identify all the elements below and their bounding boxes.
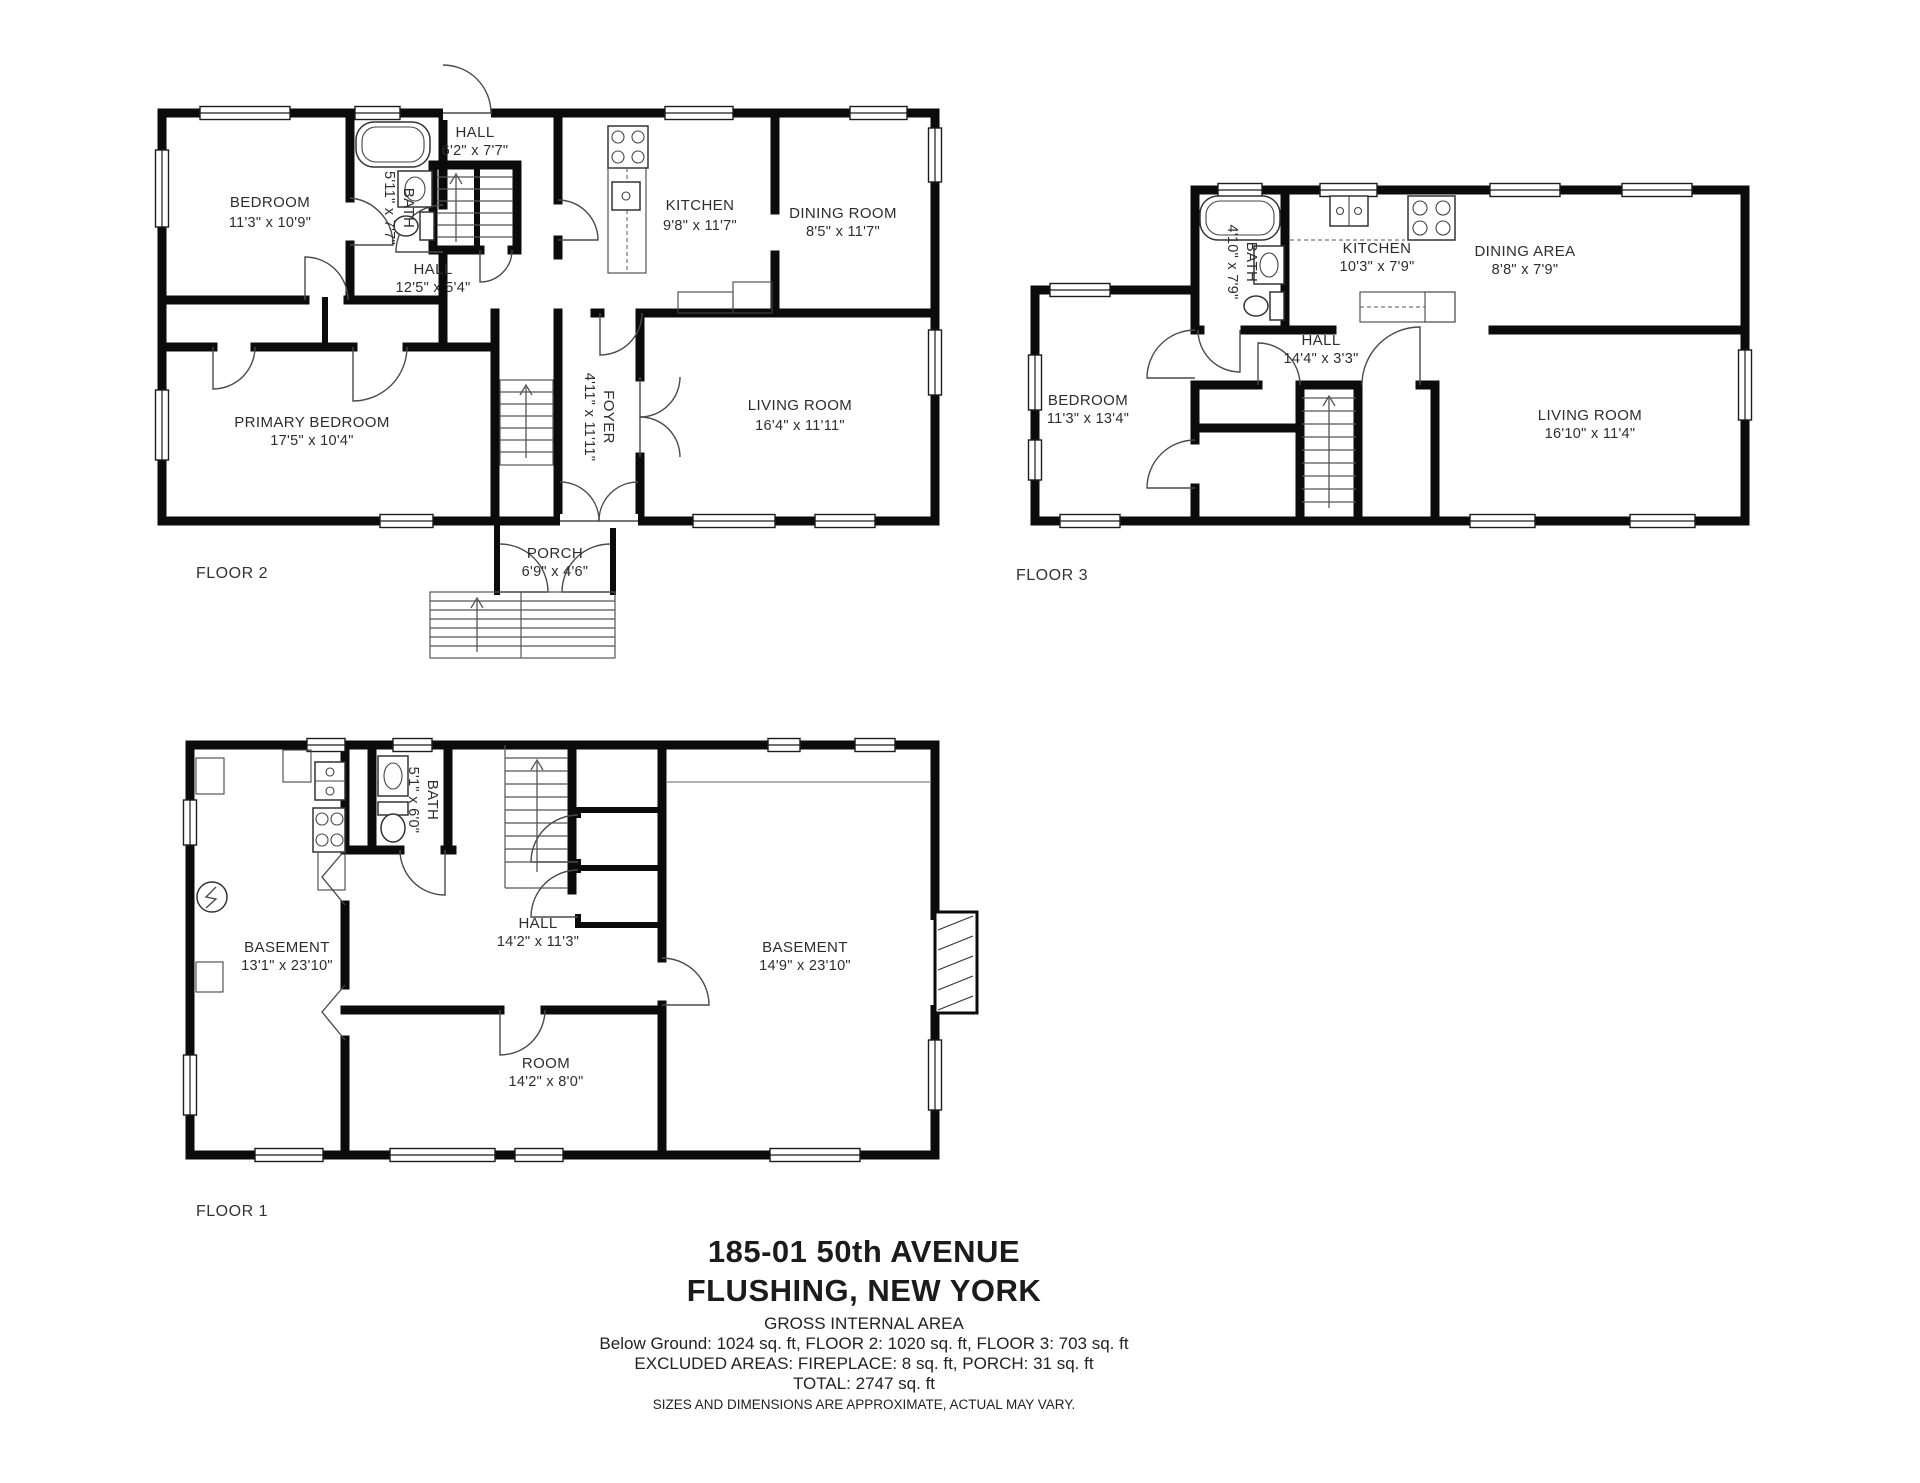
room-label-f3-kitchen: KITCHEN: [1343, 240, 1412, 257]
address-line-2: FLUSHING, NEW YORK: [687, 1273, 1042, 1308]
room-label-f2-foyer: FOYER: [600, 390, 617, 444]
room-label-f1-basement-right: BASEMENT: [762, 939, 848, 956]
room-dims-f1-hall: 14'2" x 11'3": [497, 934, 579, 950]
room-label-f1-basement-left: BASEMENT: [244, 939, 330, 956]
porch-steps-symbol: [430, 592, 615, 658]
total-area: TOTAL: 2747 sq. ft: [793, 1374, 935, 1393]
cabinet-symbol: [196, 962, 223, 992]
sink-symbol: [378, 756, 408, 796]
stairs-symbol: [500, 380, 553, 465]
room-dims-f3-bedroom: 11'3" x 13'4": [1047, 411, 1129, 427]
floor-3-windows: [1029, 184, 1752, 528]
room-dims-f1-bath: 5'1" x 6'0": [405, 767, 421, 834]
room-dims-f2-bath: 5'11" x 7'7": [381, 171, 397, 245]
room-label-f3-bedroom: BEDROOM: [1048, 392, 1128, 409]
room-label-f2-primary: PRIMARY BEDROOM: [234, 414, 389, 431]
excluded-areas: EXCLUDED AREAS: FIREPLACE: 8 sq. ft, POR…: [634, 1354, 1093, 1373]
room-label-f3-hall: HALL: [1301, 332, 1340, 349]
room-label-f2-bath: BATH: [400, 188, 417, 229]
floor-plan-page: BEDROOM 11'3" x 10'9" BATH 5'11" x 7'7" …: [0, 0, 1920, 1483]
stairs-symbol: [1302, 396, 1356, 508]
room-dims-f2-kitchen: 9'8" x 11'7": [663, 218, 737, 234]
room-label-f1-bath: BATH: [424, 780, 441, 821]
area-breakdown: Below Ground: 1024 sq. ft, FLOOR 2: 1020…: [599, 1334, 1128, 1353]
toilet-symbol: [1244, 292, 1284, 320]
stove-symbol: [313, 808, 345, 852]
dining-bench-symbol: [678, 282, 772, 313]
stove-symbol: [1408, 196, 1455, 240]
floor-3-plan: BATH 4'10" x 7'9" KITCHEN 10'3" x 7'9" D…: [1016, 184, 1752, 585]
room-label-f2-porch: PORCH: [527, 545, 583, 562]
room-dims-f2-hall-upper: 6'2" x 7'7": [442, 143, 509, 159]
room-label-f3-living: LIVING ROOM: [1538, 407, 1642, 424]
floor-2-plan: BEDROOM 11'3" x 10'9" BATH 5'11" x 7'7" …: [156, 65, 942, 658]
room-dims-f3-kitchen: 10'3" x 7'9": [1339, 259, 1414, 275]
room-label-f1-hall: HALL: [518, 915, 557, 932]
room-label-f2-dining: DINING ROOM: [789, 205, 897, 222]
room-label-f2-hall: HALL: [413, 261, 452, 278]
gross-area-heading: GROSS INTERNAL AREA: [764, 1314, 964, 1333]
water-heater-symbol: [197, 882, 227, 912]
room-label-f2-bedroom: BEDROOM: [230, 194, 310, 211]
address-line-1: 185-01 50th AVENUE: [708, 1234, 1020, 1269]
room-dims-f2-hall: 12'5" x 5'4": [395, 280, 470, 296]
room-dims-f2-dining: 8'5" x 11'7": [806, 224, 880, 240]
stairs-symbol: [505, 745, 568, 888]
room-label-f2-living: LIVING ROOM: [748, 397, 852, 414]
room-dims-f1-room: 14'2" x 8'0": [508, 1074, 583, 1090]
fireplace-symbol: [935, 912, 977, 1013]
kitchen-sink-symbol: [1330, 196, 1368, 226]
floor-plan-canvas: BEDROOM 11'3" x 10'9" BATH 5'11" x 7'7" …: [0, 0, 1920, 1483]
floor-1-plan: BASEMENT 13'1" x 23'10" BATH 5'1" x 6'0"…: [184, 739, 978, 1221]
kitchen-counter-symbol: [608, 168, 646, 273]
room-label-f2-hall-upper: HALL: [455, 124, 494, 141]
stove-symbol: [608, 126, 648, 168]
room-dims-f1-basement-right: 14'9" x 23'10": [759, 958, 851, 974]
toilet-symbol: [378, 802, 408, 842]
counter-symbol: [318, 852, 345, 890]
floor-2-label: FLOOR 2: [196, 565, 268, 582]
kitchen-island-symbol: [1360, 292, 1455, 322]
floor-1-label: FLOOR 1: [196, 1203, 268, 1220]
room-label-f3-dining: DINING AREA: [1474, 243, 1575, 260]
room-dims-f2-living: 16'4" x 11'11": [755, 418, 845, 434]
room-dims-f3-hall: 14'4" x 3'3": [1283, 351, 1358, 367]
room-label-f2-kitchen: KITCHEN: [666, 197, 735, 214]
room-dims-f2-porch: 6'9" x 4'6": [522, 564, 589, 580]
room-dims-f2-foyer: 4'11" x 11'11": [581, 373, 597, 462]
laundry-sink-symbol: [315, 762, 345, 800]
room-label-f1-room: ROOM: [522, 1055, 570, 1072]
room-dims-f3-living: 16'10" x 11'4": [1545, 426, 1636, 442]
cabinet-symbol: [283, 750, 311, 782]
room-dims-f1-basement-left: 13'1" x 23'10": [241, 958, 333, 974]
room-dims-f2-bedroom: 11'3" x 10'9": [229, 215, 311, 231]
room-dims-f3-dining: 8'8" x 7'9": [1492, 262, 1559, 278]
cabinet-symbol: [196, 758, 224, 794]
bathtub-symbol: [356, 122, 430, 167]
title-block: 185-01 50th AVENUE FLUSHING, NEW YORK GR…: [599, 1234, 1128, 1412]
room-dims-f3-bath: 4'10" x 7'9": [1224, 224, 1240, 299]
disclaimer: SIZES AND DIMENSIONS ARE APPROXIMATE, AC…: [653, 1397, 1076, 1412]
room-label-f3-bath: BATH: [1243, 242, 1260, 283]
floor-3-label: FLOOR 3: [1016, 567, 1088, 584]
room-dims-f2-primary: 17'5" x 10'4": [270, 433, 353, 449]
